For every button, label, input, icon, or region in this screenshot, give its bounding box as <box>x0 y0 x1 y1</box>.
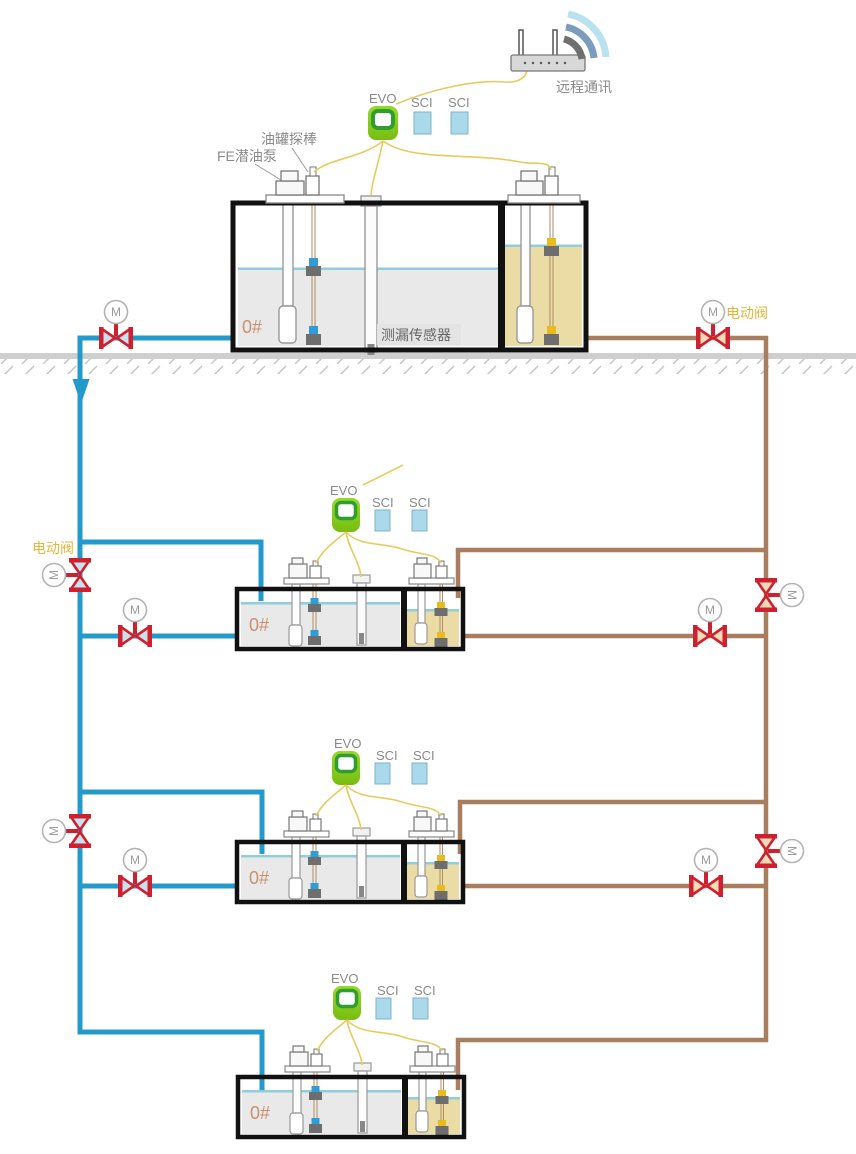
sci-label: SCI <box>376 748 398 763</box>
sci-label: SCI <box>413 748 435 763</box>
evo-label: EVO <box>369 91 396 106</box>
svg-text:M: M <box>785 590 799 600</box>
wifi-arcs-icon <box>564 14 606 59</box>
station-1-tank: 测漏传感器 0# <box>233 167 586 355</box>
motor-valve: M 电动阀 <box>696 301 768 350</box>
tank-probe-label: 油罐探棒 <box>261 131 317 147</box>
sci-label: SCI <box>448 95 470 110</box>
svg-text:M: M <box>130 853 140 867</box>
electric-valve-label: 电动阀 <box>726 305 768 321</box>
svg-text:M: M <box>111 305 121 319</box>
electric-valve-label: 电动阀 <box>32 540 74 556</box>
evo-label: EVO <box>334 736 361 751</box>
motor-valve: M <box>755 578 804 612</box>
motor-valve: M <box>689 849 723 898</box>
fuel-grade-label: 0# <box>249 615 269 635</box>
fuel-grade-label: 0# <box>242 317 262 337</box>
motor-valve: M <box>755 834 804 868</box>
remote-communication: 远程通讯 <box>511 14 612 95</box>
svg-text:M: M <box>785 846 799 856</box>
sci-label: SCI <box>409 495 431 510</box>
station-1-controller: EVO SCI SCI <box>314 70 551 195</box>
station-1-callouts: 油罐探棒 FE潜油泵 <box>217 131 317 180</box>
motor-valve: M <box>118 599 152 648</box>
remote-comm-label: 远程通讯 <box>556 79 612 95</box>
router-icon <box>511 30 585 71</box>
sci-label: SCI <box>372 495 394 510</box>
svg-text:M: M <box>705 603 715 617</box>
evo-label: EVO <box>330 483 357 498</box>
station-3-tank <box>237 751 463 902</box>
station-4-tank <box>238 986 464 1137</box>
motor-valve: M <box>43 814 92 848</box>
motor-valve: M <box>118 849 152 898</box>
sci-module-icon <box>414 112 431 134</box>
sci-label: SCI <box>377 983 399 998</box>
motor-valve: M <box>99 301 133 350</box>
ground-line <box>0 353 856 374</box>
motor-valve: M <box>693 599 727 648</box>
diesel-pipe-network <box>73 338 263 1092</box>
submersible-pump-head <box>266 171 344 203</box>
sci-module-icon <box>451 112 468 134</box>
svg-text:M: M <box>130 603 140 617</box>
diagram-canvas: 测漏传感器 0# EVO SCI SCI 远程通讯 <box>0 0 856 1154</box>
svg-text:M: M <box>47 570 61 580</box>
station-2-tank <box>237 498 463 649</box>
svg-text:M: M <box>708 305 718 319</box>
gasoline-pipe-network <box>458 338 766 1090</box>
pump-label: FE潜油泵 <box>217 148 277 164</box>
tank-system-schematic: 测漏传感器 0# EVO SCI SCI 远程通讯 <box>0 0 856 1154</box>
flow-arrow-down-icon <box>73 379 90 404</box>
svg-text:M: M <box>701 853 711 867</box>
evo-label: EVO <box>331 971 358 986</box>
svg-text:M: M <box>47 826 61 836</box>
fuel-grade-label: 0# <box>250 1103 270 1123</box>
fuel-grade-label: 0# <box>249 868 269 888</box>
leak-sensor-label: 测漏传感器 <box>381 327 451 343</box>
sci-label: SCI <box>414 983 436 998</box>
annotation-line <box>363 465 403 485</box>
